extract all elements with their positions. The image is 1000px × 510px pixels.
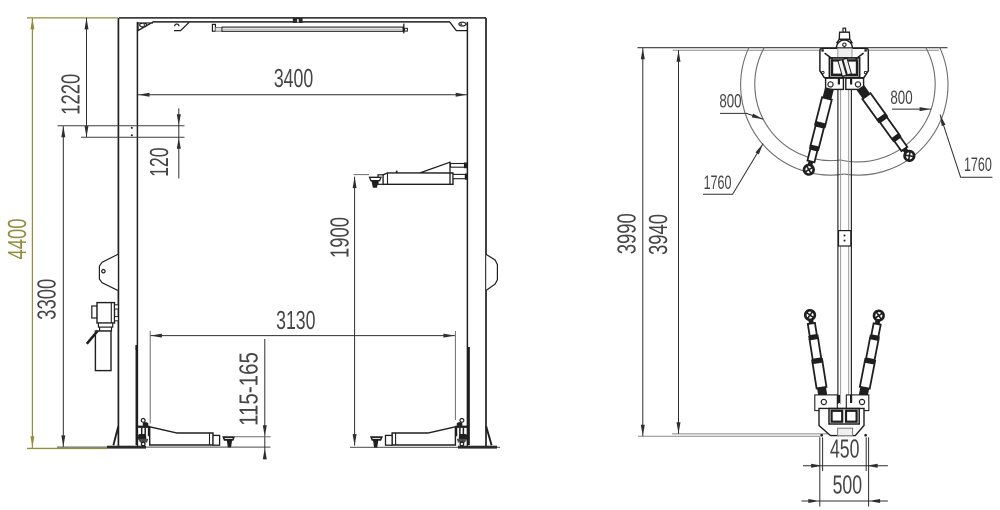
svg-text:800: 800: [719, 91, 741, 112]
svg-text:1900: 1900: [325, 217, 354, 258]
svg-text:800: 800: [890, 88, 912, 109]
svg-text:1220: 1220: [56, 74, 85, 115]
svg-text:1760: 1760: [964, 154, 992, 175]
svg-text:1760: 1760: [704, 172, 732, 193]
svg-text:500: 500: [833, 470, 862, 499]
svg-text:120: 120: [145, 147, 174, 176]
svg-text:3130: 3130: [276, 306, 315, 335]
svg-text:3940: 3940: [644, 214, 673, 255]
svg-text:3300: 3300: [33, 279, 62, 320]
svg-text:115-165: 115-165: [234, 352, 263, 426]
svg-text:3400: 3400: [274, 63, 313, 92]
svg-text:3990: 3990: [613, 213, 642, 254]
svg-text:450: 450: [830, 434, 859, 463]
svg-text:4400: 4400: [3, 218, 32, 259]
